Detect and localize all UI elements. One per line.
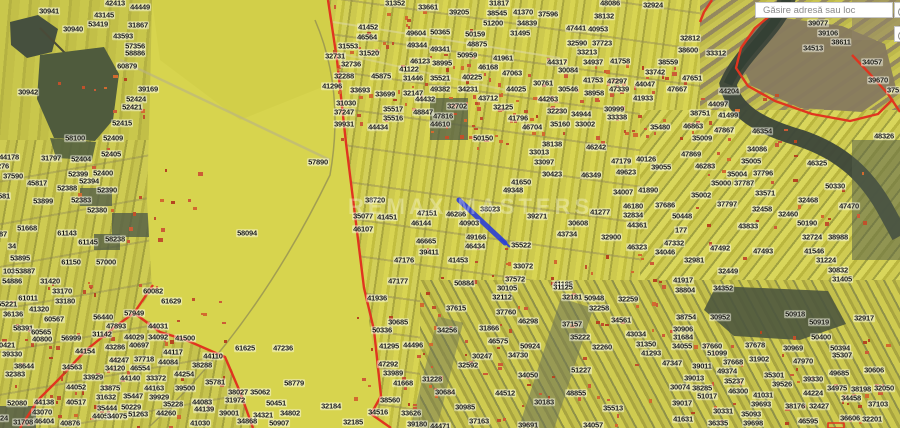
parcel-label: 43070 xyxy=(31,408,53,416)
parcel-label: 43712 xyxy=(477,94,499,102)
parcel-label: 41030 xyxy=(189,419,211,427)
parcel-label: 33170 xyxy=(51,287,73,295)
parcel-label: 51200 xyxy=(482,19,504,27)
parcel-label: 47492 xyxy=(709,244,731,252)
parcel-label: 41452 xyxy=(357,23,379,31)
parcel-label: 30761 xyxy=(532,79,554,87)
parcel-label: 52390 xyxy=(96,186,118,194)
parcel-label: 34944 xyxy=(570,110,592,118)
parcel-label: 32050 xyxy=(873,384,895,392)
parcel-label: 39271 xyxy=(526,212,548,220)
parcel-label: 40800 xyxy=(31,335,53,343)
parcel-label: 41122 xyxy=(398,65,419,73)
parcel-label: 52080 xyxy=(6,399,28,407)
parcel-label: 52380 xyxy=(86,206,108,214)
parcel-label: 43034 xyxy=(625,330,647,338)
parcel-label: 30832 xyxy=(827,266,849,274)
parcel-label: 31350 xyxy=(635,340,657,348)
parcel-label: 44178 xyxy=(0,153,20,161)
parcel-label: 38988 xyxy=(827,233,849,241)
parcel-label: 47063 xyxy=(501,69,523,77)
parcel-label: 47347 xyxy=(661,359,683,367)
parcel-label: 32460 xyxy=(777,210,799,218)
locate-button[interactable] xyxy=(894,26,900,42)
parcel-label: 46575 xyxy=(487,337,509,345)
parcel-label: 30084 xyxy=(557,66,579,74)
parcel-label: 32230 xyxy=(546,107,568,115)
parcel-label: 32590 xyxy=(566,39,588,47)
parcel-label: 47869 xyxy=(680,150,702,158)
parcel-label: 47651 xyxy=(681,74,703,82)
parcel-label: 32259 xyxy=(617,295,639,303)
parcel-label: 32736 xyxy=(340,60,362,68)
parcel-label: 44117 xyxy=(162,348,183,356)
parcel-label: 30942 xyxy=(17,88,39,96)
parcel-label: 44097 xyxy=(707,100,729,108)
parcel-label: 49341 xyxy=(429,45,451,53)
parcel-label: 46595 xyxy=(797,417,819,425)
parcel-label: 44512 xyxy=(494,389,516,397)
parcel-label: 34050 xyxy=(517,371,539,379)
parcel-label: 50907 xyxy=(268,419,290,427)
parcel-label: 44139 xyxy=(193,405,215,413)
parcel-label: 47177 xyxy=(387,277,409,285)
parcel-label: 32592 xyxy=(457,361,479,369)
parcel-label: 48326 xyxy=(873,132,895,140)
parcel-label: 33742 xyxy=(644,68,666,76)
parcel-label: 40697 xyxy=(128,341,150,349)
parcel-label: 37247 xyxy=(333,108,355,116)
parcel-label: 41451 xyxy=(376,213,398,221)
parcel-label: 32288 xyxy=(333,72,355,80)
parcel-label: 41500 xyxy=(174,334,196,342)
parcel-label: 37796 xyxy=(752,169,774,177)
parcel-label: 34231 xyxy=(457,85,479,93)
parcel-label: 31797 xyxy=(40,154,62,162)
parcel-label: 39931 xyxy=(333,120,355,128)
parcel-label: 46665 xyxy=(415,237,437,245)
parcel-label: 30684 xyxy=(434,388,456,396)
parcel-label: 40876 xyxy=(59,419,81,427)
parcel-label: 32981 xyxy=(683,256,705,264)
parcel-label: 41890 xyxy=(637,186,659,194)
parcel-label: 52404 xyxy=(70,155,92,163)
parcel-label: 32112 xyxy=(491,293,512,301)
parcel-label: 38720 xyxy=(364,196,386,204)
parcel-label: 33626 xyxy=(400,409,422,417)
parcel-label: 44496 xyxy=(402,341,424,349)
parcel-label: 35307 xyxy=(831,351,853,359)
parcel-label: 41370 xyxy=(512,8,534,16)
parcel-label: 31352 xyxy=(384,0,406,7)
parcel-label: 39077 xyxy=(807,19,829,27)
parcel-label: 32383 xyxy=(4,370,26,378)
parcel-label: 39330 xyxy=(1,350,23,358)
parcel-label: 39055 xyxy=(650,163,672,171)
parcel-label: 34057 xyxy=(582,421,604,428)
parcel-label: 37103 xyxy=(867,400,889,408)
parcel-label: 38995 xyxy=(431,59,453,67)
parcel-label: 33929 xyxy=(82,373,104,381)
parcel-label: 44025 xyxy=(505,85,527,93)
parcel-label: 38132 xyxy=(593,12,615,20)
parcel-label: 34075 xyxy=(106,412,128,420)
parcel-label: 33213 xyxy=(576,48,598,56)
parcel-label: 34352 xyxy=(712,284,734,292)
parcel-label: 41320 xyxy=(28,305,50,313)
parcel-label: 33180 xyxy=(54,297,76,305)
parcel-label: 46298 xyxy=(517,317,539,325)
parcel-label: 31972 xyxy=(224,396,246,404)
parcel-label: 38560 xyxy=(379,396,401,404)
search-box[interactable] xyxy=(755,2,893,18)
parcel-label: 61629 xyxy=(160,297,182,305)
parcel-label: 39169 xyxy=(137,85,159,93)
parcel-label: 33013 xyxy=(528,148,550,156)
parcel-label: 31405 xyxy=(831,275,853,283)
parcel-label: 39670 xyxy=(867,76,889,84)
parcel-label: 53419 xyxy=(87,20,109,28)
parcel-label: 57949 xyxy=(123,309,145,317)
parcel-label: 38023 xyxy=(479,205,501,213)
parcel-label: 41453 xyxy=(447,256,469,264)
parcel-label: 35160 xyxy=(549,120,571,128)
parcel-label: 42413 xyxy=(104,0,126,7)
parcel-label: 39691 xyxy=(517,421,539,428)
parcel-label: 37797 xyxy=(716,200,738,208)
parcel-label: 31446 xyxy=(402,74,424,82)
parcel-label: 37678 xyxy=(744,341,766,349)
parcel-label: 34 xyxy=(7,242,17,250)
parcel-label: 32125 xyxy=(492,103,514,111)
parcel-label: 47867 xyxy=(713,126,735,134)
parcel-label: 57890 xyxy=(307,158,329,166)
parcel-label: 53899 xyxy=(32,197,54,205)
parcel-label: 34007 xyxy=(612,188,634,196)
parcel-label: 47292 xyxy=(377,360,399,368)
parcel-label: 46107 xyxy=(352,225,374,233)
parcel-label: 33072 xyxy=(512,262,534,270)
parcel-label: 30423 xyxy=(541,170,563,178)
parcel-label: 49348 xyxy=(502,186,524,194)
parcel-label: 34730 xyxy=(507,351,529,359)
parcel-label: 48855 xyxy=(565,389,587,397)
parcel-label: 52405 xyxy=(100,150,122,158)
parcel-label: 33312 xyxy=(705,49,727,57)
parcel-label: 48086 xyxy=(599,0,621,7)
parcel-label: 50919 xyxy=(808,318,830,326)
parcel-label: 34975 xyxy=(826,384,848,392)
parcel-label: 52394 xyxy=(78,177,100,185)
parcel-label: 30952 xyxy=(709,313,731,321)
cadastral-map-viewer: 3094142413444494314553419318673094043593… xyxy=(0,0,900,428)
parcel-label: 45875 xyxy=(370,72,392,80)
parcel-label: 24 xyxy=(0,414,9,422)
parcel-label: 32724 xyxy=(801,233,823,241)
parcel-label: 31224 xyxy=(815,256,837,264)
parcel-label: 44263 xyxy=(537,95,559,103)
search-input[interactable] xyxy=(756,5,892,16)
parcel-label: 35781 xyxy=(204,378,226,386)
parcel-label: 41031 xyxy=(752,391,774,399)
parcel-label: 32924 xyxy=(642,1,664,9)
parcel-label: 44163 xyxy=(143,384,165,392)
parcel-label: 38600 xyxy=(677,46,699,54)
parcel-label: 52415 xyxy=(111,119,133,127)
parcel-label: 37572 xyxy=(504,275,526,283)
parcel-label: 37668 xyxy=(722,358,744,366)
parcel-label: 39011 xyxy=(691,362,712,370)
parcel-label: 53895 xyxy=(9,254,31,262)
parcel-label: 47970 xyxy=(792,357,814,365)
parcel-label: 51263 xyxy=(127,410,149,418)
parcel-label: 34092 xyxy=(147,333,169,341)
parcel-label: 49604 xyxy=(405,29,427,37)
parcel-label: 33338 xyxy=(606,113,628,121)
parcel-label: 44154 xyxy=(74,347,96,355)
parcel-label: 37718 xyxy=(133,355,155,363)
parcel-label: 35005 xyxy=(740,157,762,165)
parcel-label: 34256 xyxy=(436,326,458,334)
parcel-labels-layer: 3094142413444494314553419318673094043593… xyxy=(0,0,900,428)
parcel-label: 56999 xyxy=(60,334,82,342)
parcel-label: 31684 xyxy=(672,333,694,341)
parcel-label: 44110 xyxy=(202,352,223,360)
parcel-label: 50365 xyxy=(429,28,451,36)
parcel-label: 35522 xyxy=(510,241,532,249)
parcel-label: 49623 xyxy=(615,168,637,176)
parcel-label: 34057 xyxy=(861,58,883,66)
parcel-label: 41277 xyxy=(589,208,611,216)
parcel-label: 31420 xyxy=(39,277,61,285)
parcel-label: 30985 xyxy=(454,403,476,411)
parcel-label: 43833 xyxy=(737,222,759,230)
parcel-label: 35222 xyxy=(569,333,591,341)
parcel-label: 46404 xyxy=(33,417,55,425)
parcel-label: 44260 xyxy=(155,409,177,417)
parcel-label: 44434 xyxy=(367,123,389,131)
parcel-label: 61143 xyxy=(56,229,77,237)
parcel-label: 47441 xyxy=(565,24,587,32)
parcel-label: 44432 xyxy=(414,95,436,103)
parcel-label: 38198 xyxy=(850,385,872,393)
parcel-label: 38545 xyxy=(486,9,508,17)
parcel-label: 39013 xyxy=(683,374,705,382)
parcel-label: 37686 xyxy=(654,201,676,209)
search-button[interactable] xyxy=(894,2,900,18)
parcel-label: 50884 xyxy=(453,279,475,287)
parcel-label: 51668 xyxy=(16,224,38,232)
parcel-label: 35513 xyxy=(602,404,624,412)
parcel-label: 33875 xyxy=(99,384,121,392)
parcel-label: 33372 xyxy=(145,374,167,382)
parcel-label: 30074 xyxy=(669,383,691,391)
parcel-label: 50336 xyxy=(371,326,393,334)
parcel-label: 39017 xyxy=(671,399,693,407)
parcel-label: 58094 xyxy=(236,229,258,237)
parcel-label: 61011 xyxy=(17,294,38,302)
parcel-label: 38754 xyxy=(675,313,697,321)
parcel-label: 35517 xyxy=(382,105,404,113)
parcel-label: 41296 xyxy=(321,82,343,90)
parcel-label: 41758 xyxy=(609,57,631,65)
parcel-label: 34458 xyxy=(840,394,862,402)
parcel-label: 41631 xyxy=(672,415,694,423)
parcel-label: 61625 xyxy=(234,344,256,352)
parcel-label: 32917 xyxy=(853,314,875,322)
parcel-label: 40421 xyxy=(0,341,16,349)
parcel-label: 50948 xyxy=(583,294,605,302)
parcel-label: 39205 xyxy=(448,8,470,16)
parcel-label: 31520 xyxy=(358,49,380,57)
parcel-label: 39698 xyxy=(742,419,764,427)
parcel-label: 30969 xyxy=(782,344,804,352)
parcel-label: 58779 xyxy=(283,379,305,387)
parcel-label: 40225 xyxy=(461,73,483,81)
parcel-label: 32900 xyxy=(600,233,622,241)
parcel-label: 35062 xyxy=(249,388,271,396)
parcel-label: 31867 xyxy=(127,21,149,29)
parcel-label: 31632 xyxy=(95,393,117,401)
parcel-label: 30331 xyxy=(712,407,734,415)
parcel-label: 30608 xyxy=(567,219,589,227)
parcel-label: 40953 xyxy=(587,25,609,33)
parcel-label: 33989 xyxy=(382,369,404,377)
parcel-label: 44138 xyxy=(33,398,55,406)
parcel-label: 32185 xyxy=(342,418,364,426)
parcel-label: 43145 xyxy=(93,11,115,19)
parcel-label: 60082 xyxy=(142,287,164,295)
parcel-label: 39500 xyxy=(174,384,196,392)
parcel-label: 57000 xyxy=(95,258,117,266)
parcel-label: 39106 xyxy=(817,29,839,37)
parcel-label: 32260 xyxy=(591,343,613,351)
parcel-label: 34513 xyxy=(802,44,824,52)
parcel-label: 32458 xyxy=(751,205,773,213)
parcel-label: 46168 xyxy=(477,63,499,71)
parcel-label: 38751 xyxy=(689,109,711,117)
parcel-label: 35521 xyxy=(429,74,451,82)
parcel-label: 34563 xyxy=(61,363,83,371)
parcel-label: 49382 xyxy=(429,85,451,93)
parcel-label: 38804 xyxy=(674,286,696,294)
parcel-label: 581 xyxy=(0,192,11,200)
parcel-label: 50400 xyxy=(810,333,832,341)
parcel-label: 41961 xyxy=(492,54,514,62)
parcel-label: 34937 xyxy=(582,58,604,66)
parcel-label: 37163 xyxy=(468,417,490,425)
parcel-label: 41295 xyxy=(378,342,400,350)
parcel-label: 375 xyxy=(886,86,900,94)
parcel-label: 30183 xyxy=(533,398,555,406)
parcel-label: 48875 xyxy=(466,40,488,48)
parcel-label: 46434 xyxy=(464,242,486,250)
parcel-label: 60567 xyxy=(43,315,65,323)
parcel-label: 37590 xyxy=(2,172,24,180)
parcel-label: 34868 xyxy=(236,417,258,425)
parcel-label: 31142 xyxy=(91,330,112,338)
parcel-label: 61150 xyxy=(60,258,81,266)
parcel-label: 47667 xyxy=(666,85,688,93)
parcel-label: 43286 xyxy=(104,343,126,351)
parcel-label: 32427 xyxy=(808,402,830,410)
parcel-label: 37760 xyxy=(495,308,517,316)
parcel-label: 31125 xyxy=(552,283,573,291)
parcel-label: 33571 xyxy=(754,189,776,197)
parcel-label: 43734 xyxy=(556,230,578,238)
parcel-label: 32258 xyxy=(588,304,610,312)
parcel-label: 51099 xyxy=(706,349,728,357)
parcel-label: 44610 xyxy=(429,120,451,128)
parcel-label: 50924 xyxy=(519,342,541,350)
parcel-label: 33699 xyxy=(374,90,396,98)
parcel-label: 30941 xyxy=(38,7,60,15)
parcel-label: 61145 xyxy=(77,238,98,246)
parcel-label: 44471 xyxy=(429,422,451,428)
parcel-label: 44224 xyxy=(802,389,824,397)
parcel-label: 50448 xyxy=(671,212,693,220)
parcel-label: 52409 xyxy=(102,134,124,142)
parcel-label: 33097 xyxy=(533,158,555,166)
parcel-label: 46863 xyxy=(682,122,704,130)
parcel-label: 49374 xyxy=(716,367,738,375)
parcel-label: 35093 xyxy=(740,410,762,418)
parcel-label: 30105 xyxy=(496,284,518,292)
parcel-label: 35516 xyxy=(382,114,404,122)
parcel-label: 47151 xyxy=(416,209,438,217)
parcel-label: 47470 xyxy=(838,202,860,210)
parcel-label: 32449 xyxy=(717,267,739,275)
parcel-label: 31708 xyxy=(12,418,34,426)
parcel-label: 46180 xyxy=(622,202,644,210)
parcel-label: 56440 xyxy=(92,313,114,321)
parcel-label: 35228 xyxy=(162,400,184,408)
parcel-label: 60879 xyxy=(116,62,138,70)
parcel-label: 34046 xyxy=(654,248,676,256)
parcel-label: 45817 xyxy=(26,179,48,187)
parcel-label: 41936 xyxy=(366,294,388,302)
parcel-label: 44047 xyxy=(634,80,656,88)
parcel-label: 58100 xyxy=(64,134,86,142)
parcel-label: 51227 xyxy=(570,366,592,374)
parcel-label: 32812 xyxy=(679,34,701,42)
parcel-label: 41917 xyxy=(672,276,694,284)
parcel-label: 46704 xyxy=(521,123,543,131)
parcel-label: 34516 xyxy=(367,408,389,416)
parcel-label: 47179 xyxy=(610,157,632,165)
parcel-label: 52388 xyxy=(56,184,78,192)
parcel-label: 46354 xyxy=(751,127,773,135)
parcel-label: 46286 xyxy=(445,210,467,218)
parcel-label: 34802 xyxy=(279,409,301,417)
parcel-label: 47493 xyxy=(752,247,774,255)
parcel-label: 44449 xyxy=(129,3,151,11)
parcel-label: 37615 xyxy=(445,304,467,312)
parcel-label: 41753 xyxy=(582,76,604,84)
parcel-label: 35447 xyxy=(122,392,144,400)
parcel-label: 31866 xyxy=(478,324,500,332)
parcel-label: 46300 xyxy=(727,387,749,395)
parcel-label: 33002 xyxy=(574,120,596,128)
parcel-label: 49344 xyxy=(406,41,428,49)
parcel-label: 35004 xyxy=(726,170,748,178)
parcel-label: 50918 xyxy=(784,310,806,318)
parcel-label: 39526 xyxy=(771,380,793,388)
parcel-label: 47236 xyxy=(272,344,294,352)
parcel-label: 50159 xyxy=(464,30,486,38)
parcel-label: 46564 xyxy=(356,33,378,41)
parcel-label: 34055 xyxy=(671,342,693,350)
